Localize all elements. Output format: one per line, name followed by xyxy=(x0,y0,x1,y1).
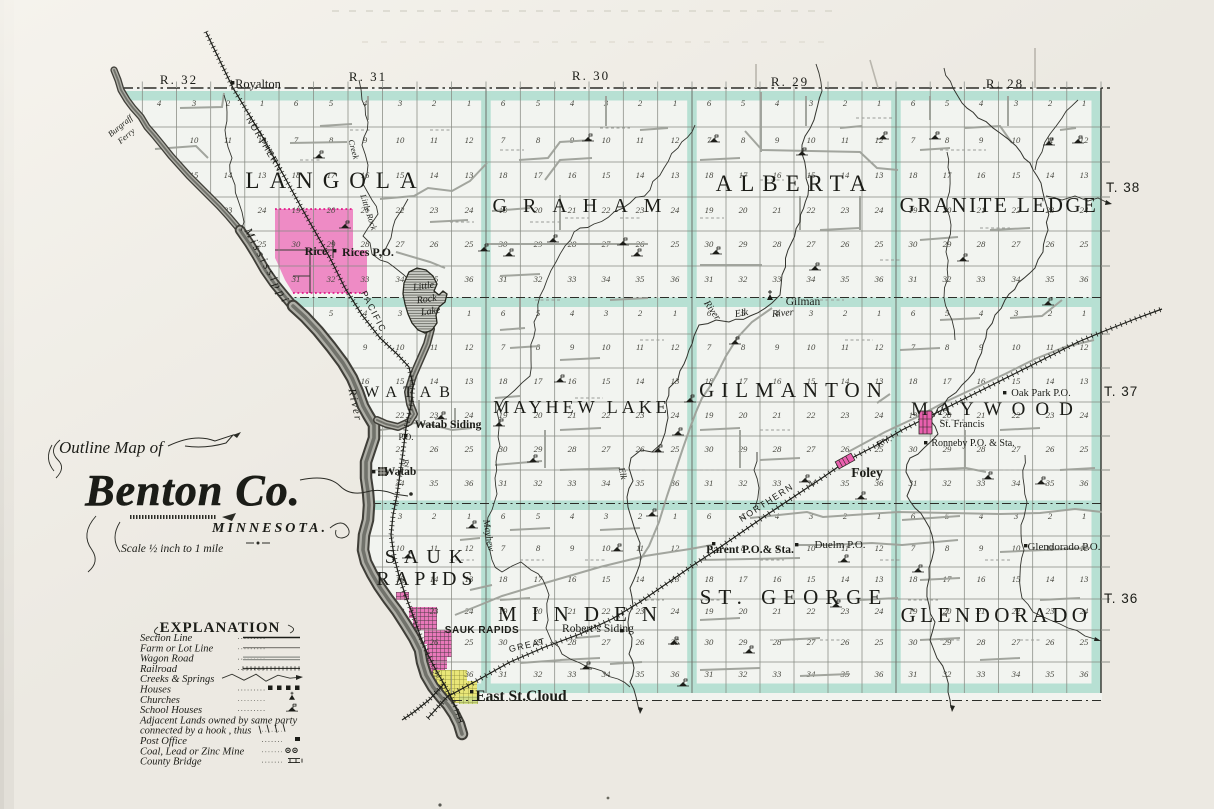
svg-text:2: 2 xyxy=(843,308,848,318)
svg-text:5: 5 xyxy=(536,511,541,521)
svg-text:35: 35 xyxy=(840,478,850,488)
svg-text:36: 36 xyxy=(464,274,474,284)
svg-text:31: 31 xyxy=(498,478,508,488)
svg-text:4: 4 xyxy=(570,98,575,108)
svg-text:ST. GEORGE: ST. GEORGE xyxy=(700,585,889,609)
svg-text:26: 26 xyxy=(1046,637,1055,647)
svg-text:26: 26 xyxy=(841,637,850,647)
svg-text:9: 9 xyxy=(363,342,368,352)
svg-text:WATAB: WATAB xyxy=(364,384,458,401)
svg-text:8: 8 xyxy=(329,135,334,145)
svg-text:35: 35 xyxy=(1045,478,1055,488)
svg-text:12: 12 xyxy=(465,342,474,352)
svg-text:20: 20 xyxy=(739,410,748,420)
svg-text:16: 16 xyxy=(568,376,577,386)
svg-text:30: 30 xyxy=(498,637,508,647)
svg-text:8: 8 xyxy=(741,135,746,145)
svg-text:13: 13 xyxy=(1080,170,1089,180)
svg-text:12: 12 xyxy=(671,135,680,145)
svg-text:River: River xyxy=(771,307,795,320)
svg-text:10: 10 xyxy=(396,135,405,145)
svg-text:33: 33 xyxy=(567,478,577,488)
svg-text:9: 9 xyxy=(570,135,575,145)
svg-text:Watab: Watab xyxy=(384,466,417,478)
svg-text:34: 34 xyxy=(806,669,816,679)
svg-text:33: 33 xyxy=(772,669,782,679)
svg-text:7: 7 xyxy=(501,135,506,145)
svg-text:31: 31 xyxy=(908,274,918,284)
svg-text:4: 4 xyxy=(570,511,575,521)
svg-text:33: 33 xyxy=(976,669,986,679)
svg-text:13: 13 xyxy=(875,574,884,584)
svg-text:26: 26 xyxy=(1046,239,1055,249)
svg-text:16: 16 xyxy=(977,574,986,584)
svg-text:5: 5 xyxy=(329,308,334,318)
svg-text:County Bridge: County Bridge xyxy=(140,757,202,768)
svg-text:8: 8 xyxy=(741,342,746,352)
svg-text:10: 10 xyxy=(807,342,816,352)
svg-text:10: 10 xyxy=(396,342,405,352)
svg-text:15: 15 xyxy=(807,574,816,584)
svg-text:36: 36 xyxy=(464,478,474,488)
svg-text:36: 36 xyxy=(1079,669,1089,679)
svg-text:28: 28 xyxy=(568,444,577,454)
svg-text:34: 34 xyxy=(1011,274,1021,284)
svg-text:GLENDORADO: GLENDORADO xyxy=(901,603,1092,627)
svg-text:20: 20 xyxy=(739,205,748,215)
svg-text:2: 2 xyxy=(843,98,848,108)
svg-text:25: 25 xyxy=(465,239,474,249)
svg-text:14: 14 xyxy=(1046,170,1055,180)
svg-text:3: 3 xyxy=(1013,98,1019,108)
svg-text:24: 24 xyxy=(258,205,267,215)
svg-text:33: 33 xyxy=(567,669,577,679)
svg-text:4: 4 xyxy=(157,98,162,108)
svg-text:32: 32 xyxy=(326,274,336,284)
svg-text:6: 6 xyxy=(501,98,506,108)
svg-text:9: 9 xyxy=(775,342,780,352)
svg-text:2: 2 xyxy=(638,98,643,108)
svg-text:36: 36 xyxy=(874,669,884,679)
svg-text:23: 23 xyxy=(841,410,850,420)
svg-text:4: 4 xyxy=(775,98,780,108)
svg-text:34: 34 xyxy=(806,274,816,284)
svg-text:33: 33 xyxy=(567,274,577,284)
svg-text:34: 34 xyxy=(395,274,405,284)
svg-text:27: 27 xyxy=(602,444,611,454)
svg-text:5: 5 xyxy=(945,98,950,108)
svg-text:26: 26 xyxy=(430,637,439,647)
svg-text:35: 35 xyxy=(1045,274,1055,284)
svg-text:14: 14 xyxy=(636,170,645,180)
svg-text:9: 9 xyxy=(979,543,984,553)
svg-text:34: 34 xyxy=(601,478,611,488)
svg-text:14: 14 xyxy=(636,574,645,584)
svg-text:15: 15 xyxy=(602,574,611,584)
svg-text:8: 8 xyxy=(536,543,541,553)
svg-text:Gilman: Gilman xyxy=(786,296,821,308)
svg-text:2: 2 xyxy=(432,98,437,108)
svg-text:Duelm P.O.: Duelm P.O. xyxy=(814,539,865,551)
svg-text:26: 26 xyxy=(430,239,439,249)
svg-text:17: 17 xyxy=(943,376,952,386)
svg-text:14: 14 xyxy=(841,574,850,584)
svg-text:7: 7 xyxy=(911,342,916,352)
svg-text:25: 25 xyxy=(1080,239,1089,249)
svg-text:31: 31 xyxy=(498,669,508,679)
svg-text:Benton Co.: Benton Co. xyxy=(84,466,300,515)
svg-text:35: 35 xyxy=(635,478,645,488)
svg-text:32: 32 xyxy=(533,669,543,679)
svg-text:18: 18 xyxy=(705,574,714,584)
svg-text:Outline Map of: Outline Map of xyxy=(59,438,165,457)
svg-text:30: 30 xyxy=(704,637,714,647)
svg-text:36: 36 xyxy=(670,669,680,679)
svg-text:27: 27 xyxy=(1012,239,1021,249)
svg-text:11: 11 xyxy=(224,135,232,145)
svg-text:R. 28: R. 28 xyxy=(986,76,1024,91)
svg-text:29: 29 xyxy=(327,239,336,249)
svg-text:30: 30 xyxy=(704,444,714,454)
svg-text:4: 4 xyxy=(570,308,575,318)
svg-text:17: 17 xyxy=(534,574,543,584)
svg-text:35: 35 xyxy=(635,669,645,679)
svg-text:35: 35 xyxy=(429,478,439,488)
svg-text:6: 6 xyxy=(501,308,506,318)
svg-text:26: 26 xyxy=(1046,444,1055,454)
svg-text:Foley: Foley xyxy=(851,465,883,480)
svg-text:11: 11 xyxy=(430,135,438,145)
svg-text:14: 14 xyxy=(636,376,645,386)
svg-text:18: 18 xyxy=(909,574,918,584)
svg-text:34: 34 xyxy=(1011,669,1021,679)
svg-text:13: 13 xyxy=(1080,376,1089,386)
svg-text:26: 26 xyxy=(430,444,439,454)
svg-text:30: 30 xyxy=(908,444,918,454)
svg-text:10: 10 xyxy=(602,543,611,553)
svg-text:SAUK: SAUK xyxy=(385,546,471,568)
svg-text:32: 32 xyxy=(942,478,952,488)
svg-text:21: 21 xyxy=(773,410,782,420)
svg-text:14: 14 xyxy=(1046,376,1055,386)
svg-text:East St.Cloud: East St.Cloud xyxy=(475,688,567,705)
svg-text:30: 30 xyxy=(908,637,918,647)
svg-text:23: 23 xyxy=(430,205,439,215)
svg-text:19: 19 xyxy=(705,205,714,215)
svg-text:St. Francis: St. Francis xyxy=(940,419,985,430)
svg-text:1: 1 xyxy=(467,511,471,521)
svg-text:GRAHAM: GRAHAM xyxy=(493,195,678,217)
svg-text:23: 23 xyxy=(841,205,850,215)
svg-text:Parent P.O.& Sta.: Parent P.O.& Sta. xyxy=(706,544,794,556)
svg-text:24: 24 xyxy=(875,205,884,215)
svg-text:3: 3 xyxy=(603,511,609,521)
svg-text:3: 3 xyxy=(397,308,403,318)
svg-text:1: 1 xyxy=(467,308,471,318)
svg-text:T. 38: T. 38 xyxy=(1106,180,1140,195)
svg-text:22: 22 xyxy=(396,410,405,420)
svg-text:14: 14 xyxy=(430,170,439,180)
svg-text:13: 13 xyxy=(875,170,884,180)
svg-text:18: 18 xyxy=(499,574,508,584)
svg-text:36: 36 xyxy=(464,669,474,679)
svg-text:29: 29 xyxy=(534,444,543,454)
svg-text:29: 29 xyxy=(739,239,748,249)
svg-text:2: 2 xyxy=(638,511,643,521)
svg-text:32: 32 xyxy=(533,274,543,284)
svg-text:33: 33 xyxy=(360,274,370,284)
svg-text:25: 25 xyxy=(671,444,680,454)
svg-text:6: 6 xyxy=(707,98,712,108)
svg-text:18: 18 xyxy=(705,170,714,180)
svg-text:30: 30 xyxy=(908,239,918,249)
svg-text:12: 12 xyxy=(875,342,884,352)
svg-text:3: 3 xyxy=(1013,511,1019,521)
svg-text:6: 6 xyxy=(911,98,916,108)
svg-text:19: 19 xyxy=(292,205,301,215)
svg-text:24: 24 xyxy=(671,606,680,616)
svg-text:7: 7 xyxy=(707,135,712,145)
svg-text:24: 24 xyxy=(671,410,680,420)
svg-text:GILMANTON: GILMANTON xyxy=(699,378,889,402)
svg-text:3: 3 xyxy=(808,98,814,108)
svg-text:27: 27 xyxy=(1012,637,1021,647)
svg-text:9: 9 xyxy=(570,543,575,553)
svg-text:22: 22 xyxy=(807,205,816,215)
svg-text:10: 10 xyxy=(190,135,199,145)
svg-text:18: 18 xyxy=(499,170,508,180)
svg-text:8: 8 xyxy=(945,135,950,145)
svg-text:2: 2 xyxy=(432,511,437,521)
svg-text:27: 27 xyxy=(396,239,405,249)
svg-text:SAUK RAPIDS: SAUK RAPIDS xyxy=(445,625,519,636)
svg-text:29: 29 xyxy=(739,637,748,647)
svg-text:R. 30: R. 30 xyxy=(572,68,610,83)
svg-text:18: 18 xyxy=(499,376,508,386)
svg-text:25: 25 xyxy=(465,444,474,454)
svg-text:2: 2 xyxy=(638,308,643,318)
svg-text:15: 15 xyxy=(1012,170,1021,180)
svg-text:33: 33 xyxy=(976,274,986,284)
svg-text:31: 31 xyxy=(908,669,918,679)
svg-text:7: 7 xyxy=(707,342,712,352)
svg-text:26: 26 xyxy=(841,239,850,249)
svg-text:T. 36: T. 36 xyxy=(1104,591,1138,606)
svg-text:36: 36 xyxy=(1079,274,1089,284)
svg-text:26: 26 xyxy=(636,444,645,454)
svg-text:8: 8 xyxy=(945,543,950,553)
svg-text:7: 7 xyxy=(911,135,916,145)
svg-text:11: 11 xyxy=(841,342,849,352)
svg-text:24: 24 xyxy=(875,410,884,420)
svg-text:7: 7 xyxy=(501,342,506,352)
svg-text:32: 32 xyxy=(533,478,543,488)
svg-text:22: 22 xyxy=(807,410,816,420)
svg-text:Glendorado P.O.: Glendorado P.O. xyxy=(1027,541,1100,553)
svg-text:5: 5 xyxy=(329,98,334,108)
svg-text:7: 7 xyxy=(501,543,506,553)
svg-text:6: 6 xyxy=(501,511,506,521)
svg-text:10: 10 xyxy=(602,135,611,145)
svg-text:3: 3 xyxy=(191,98,197,108)
svg-text:17: 17 xyxy=(534,376,543,386)
svg-text:17: 17 xyxy=(534,170,543,180)
svg-text:1: 1 xyxy=(877,308,881,318)
svg-text:11: 11 xyxy=(1046,342,1054,352)
svg-text:31: 31 xyxy=(704,478,714,488)
svg-text:R. 31: R. 31 xyxy=(349,69,387,84)
svg-text:1: 1 xyxy=(467,98,471,108)
svg-text:25: 25 xyxy=(1080,444,1089,454)
svg-text:9: 9 xyxy=(775,135,780,145)
svg-text:28: 28 xyxy=(773,444,782,454)
svg-text:9: 9 xyxy=(979,135,984,145)
svg-text:1: 1 xyxy=(673,308,677,318)
svg-text:25: 25 xyxy=(875,637,884,647)
svg-text:18: 18 xyxy=(909,170,918,180)
svg-text:1: 1 xyxy=(260,98,264,108)
svg-text:10: 10 xyxy=(807,135,816,145)
svg-text:34: 34 xyxy=(601,274,611,284)
svg-text:4: 4 xyxy=(979,511,984,521)
svg-text:28: 28 xyxy=(977,239,986,249)
svg-text:19: 19 xyxy=(705,410,714,420)
svg-text:33: 33 xyxy=(772,274,782,284)
svg-text:13: 13 xyxy=(1080,574,1089,584)
svg-text:25: 25 xyxy=(671,239,680,249)
svg-text:3: 3 xyxy=(397,511,403,521)
svg-text:10: 10 xyxy=(602,342,611,352)
svg-text:23: 23 xyxy=(430,606,439,616)
svg-text:25: 25 xyxy=(465,637,474,647)
svg-text:6: 6 xyxy=(294,98,299,108)
svg-text:31: 31 xyxy=(704,274,714,284)
svg-text:3: 3 xyxy=(397,98,403,108)
svg-text:21: 21 xyxy=(773,205,782,215)
svg-text:25: 25 xyxy=(1080,637,1089,647)
svg-text:ALBERTA: ALBERTA xyxy=(716,171,875,196)
svg-text:26: 26 xyxy=(636,637,645,647)
svg-text:32: 32 xyxy=(738,274,748,284)
svg-text:Scale ½ inch to 1 mile: Scale ½ inch to 1 mile xyxy=(121,543,223,555)
svg-text:27: 27 xyxy=(807,444,816,454)
svg-text:35: 35 xyxy=(1045,669,1055,679)
svg-text:1: 1 xyxy=(673,98,677,108)
svg-text:27: 27 xyxy=(602,637,611,647)
svg-text:MAYHEW LAKE: MAYHEW LAKE xyxy=(493,397,671,417)
svg-text:18: 18 xyxy=(909,376,918,386)
svg-text:32: 32 xyxy=(738,669,748,679)
svg-text:32: 32 xyxy=(738,478,748,488)
svg-text:28: 28 xyxy=(977,637,986,647)
svg-text:1: 1 xyxy=(673,511,677,521)
svg-text:12: 12 xyxy=(671,342,680,352)
svg-text:17: 17 xyxy=(739,574,748,584)
svg-text:4: 4 xyxy=(979,308,984,318)
svg-text:36: 36 xyxy=(1079,478,1089,488)
svg-text:15: 15 xyxy=(602,376,611,386)
svg-text:4: 4 xyxy=(979,98,984,108)
svg-text:13: 13 xyxy=(671,170,680,180)
svg-text:27: 27 xyxy=(807,239,816,249)
svg-text:MINNESOTA.: MINNESOTA. xyxy=(211,521,328,536)
svg-text:R. 29: R. 29 xyxy=(771,74,809,89)
svg-text:1: 1 xyxy=(1082,98,1086,108)
svg-text:36: 36 xyxy=(874,274,884,284)
svg-text:P.O.: P.O. xyxy=(398,432,413,442)
svg-text:11: 11 xyxy=(841,135,849,145)
svg-text:T. 37: T. 37 xyxy=(1104,384,1138,399)
svg-text:35: 35 xyxy=(840,274,850,284)
svg-text:Robert’s Siding: Robert’s Siding xyxy=(562,623,634,635)
svg-text:2: 2 xyxy=(1048,98,1053,108)
svg-text:8: 8 xyxy=(536,135,541,145)
svg-text:GRANITE LEDGE: GRANITE LEDGE xyxy=(900,193,1099,217)
svg-text:MAYWOOD: MAYWOOD xyxy=(911,399,1083,420)
svg-text:RAPIDS: RAPIDS xyxy=(376,568,477,590)
svg-text:10: 10 xyxy=(1012,342,1021,352)
svg-text:28: 28 xyxy=(773,239,782,249)
svg-text:Rice: Rice xyxy=(305,244,328,258)
svg-text:Rices P.O.: Rices P.O. xyxy=(342,245,394,259)
svg-text:16: 16 xyxy=(568,170,577,180)
svg-text:11: 11 xyxy=(636,342,644,352)
svg-text:12: 12 xyxy=(465,135,474,145)
svg-text:8: 8 xyxy=(945,342,950,352)
svg-text:1: 1 xyxy=(877,98,881,108)
svg-text:5: 5 xyxy=(741,98,746,108)
svg-text:34: 34 xyxy=(1011,478,1021,488)
svg-text:30: 30 xyxy=(704,239,714,249)
svg-text:31: 31 xyxy=(291,274,301,284)
svg-text:14: 14 xyxy=(1046,574,1055,584)
svg-text:R. 32: R. 32 xyxy=(160,72,198,87)
svg-text:3: 3 xyxy=(808,308,814,318)
svg-text:16: 16 xyxy=(977,170,986,180)
svg-text:30: 30 xyxy=(291,239,301,249)
svg-text:3: 3 xyxy=(603,308,609,318)
svg-text:28: 28 xyxy=(773,637,782,647)
svg-text:24: 24 xyxy=(465,205,474,215)
svg-text:Watab Siding: Watab Siding xyxy=(415,419,482,431)
svg-text:17: 17 xyxy=(943,170,952,180)
svg-text:6: 6 xyxy=(911,308,916,318)
svg-text:12: 12 xyxy=(1080,135,1089,145)
svg-text:35: 35 xyxy=(635,274,645,284)
svg-text:Royalton: Royalton xyxy=(235,77,282,91)
svg-text:Ronneby P.O. & Sta.: Ronneby P.O. & Sta. xyxy=(931,438,1014,449)
svg-text:5: 5 xyxy=(536,98,541,108)
svg-text:LANGOLA: LANGOLA xyxy=(245,168,426,193)
svg-text:16: 16 xyxy=(773,574,782,584)
svg-text:31: 31 xyxy=(908,478,918,488)
svg-text:11: 11 xyxy=(636,135,644,145)
svg-text:15: 15 xyxy=(602,170,611,180)
svg-text:Oak Park P.O.: Oak Park P.O. xyxy=(1011,388,1071,399)
svg-text:36: 36 xyxy=(670,274,680,284)
svg-text:3: 3 xyxy=(1013,308,1019,318)
svg-text:6: 6 xyxy=(707,511,712,521)
svg-text:33: 33 xyxy=(976,478,986,488)
svg-text:13: 13 xyxy=(465,376,474,386)
svg-text:20: 20 xyxy=(327,205,336,215)
svg-text:1: 1 xyxy=(1082,511,1086,521)
svg-text:1: 1 xyxy=(1082,308,1086,318)
svg-text:15: 15 xyxy=(1012,376,1021,386)
svg-text:9: 9 xyxy=(570,342,575,352)
svg-text:25: 25 xyxy=(875,239,884,249)
